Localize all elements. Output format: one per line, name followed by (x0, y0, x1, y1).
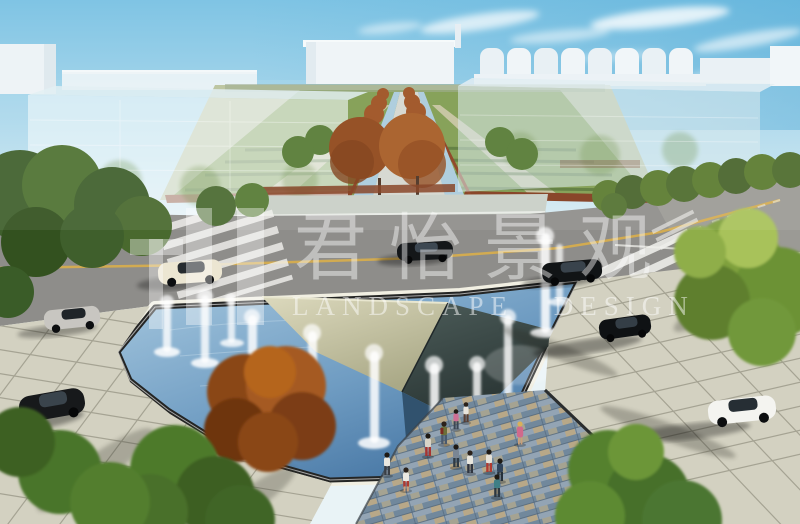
haze (0, 80, 800, 230)
brown-tree-foreground (204, 346, 336, 472)
landscape-rendering: 君怡景观 LANDSCAPE DESIGN (0, 0, 800, 524)
rendering-canvas (0, 0, 800, 524)
